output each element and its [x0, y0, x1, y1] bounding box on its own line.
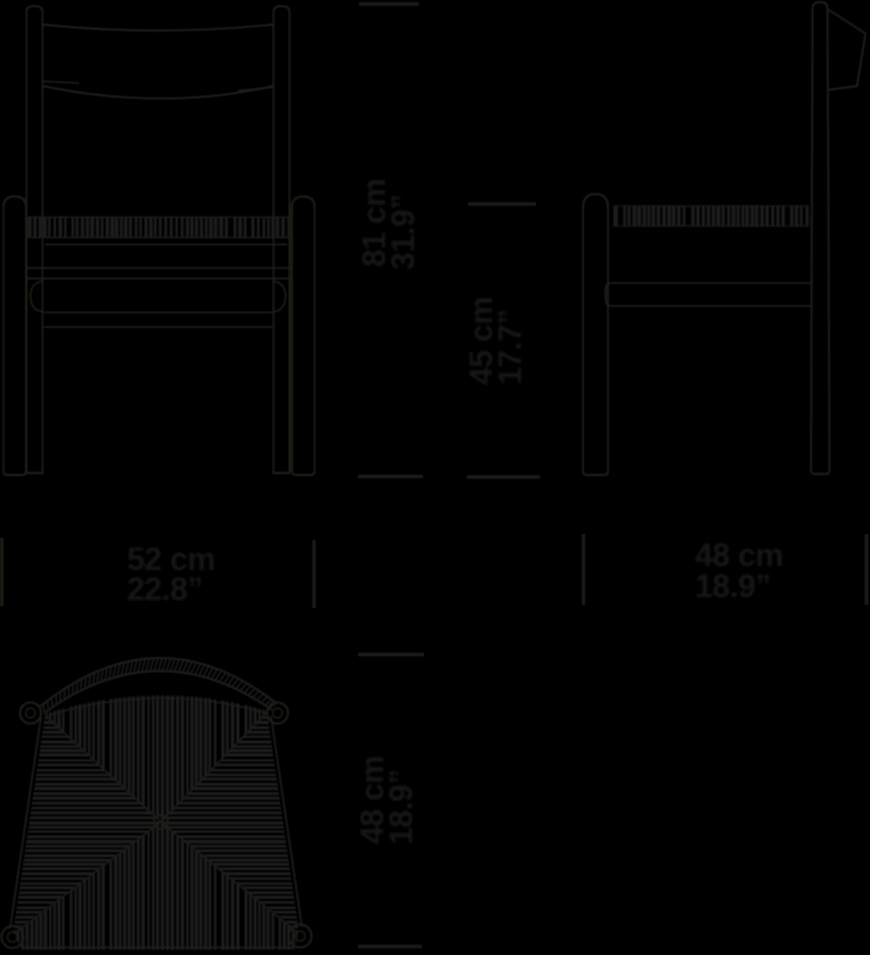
svg-text:31.9”: 31.9” [385, 194, 421, 270]
svg-text:22.8”: 22.8” [127, 571, 203, 607]
svg-text:18.9”: 18.9” [695, 568, 771, 604]
svg-text:18.9”: 18.9” [383, 769, 419, 845]
svg-text:17.7”: 17.7” [492, 309, 528, 385]
